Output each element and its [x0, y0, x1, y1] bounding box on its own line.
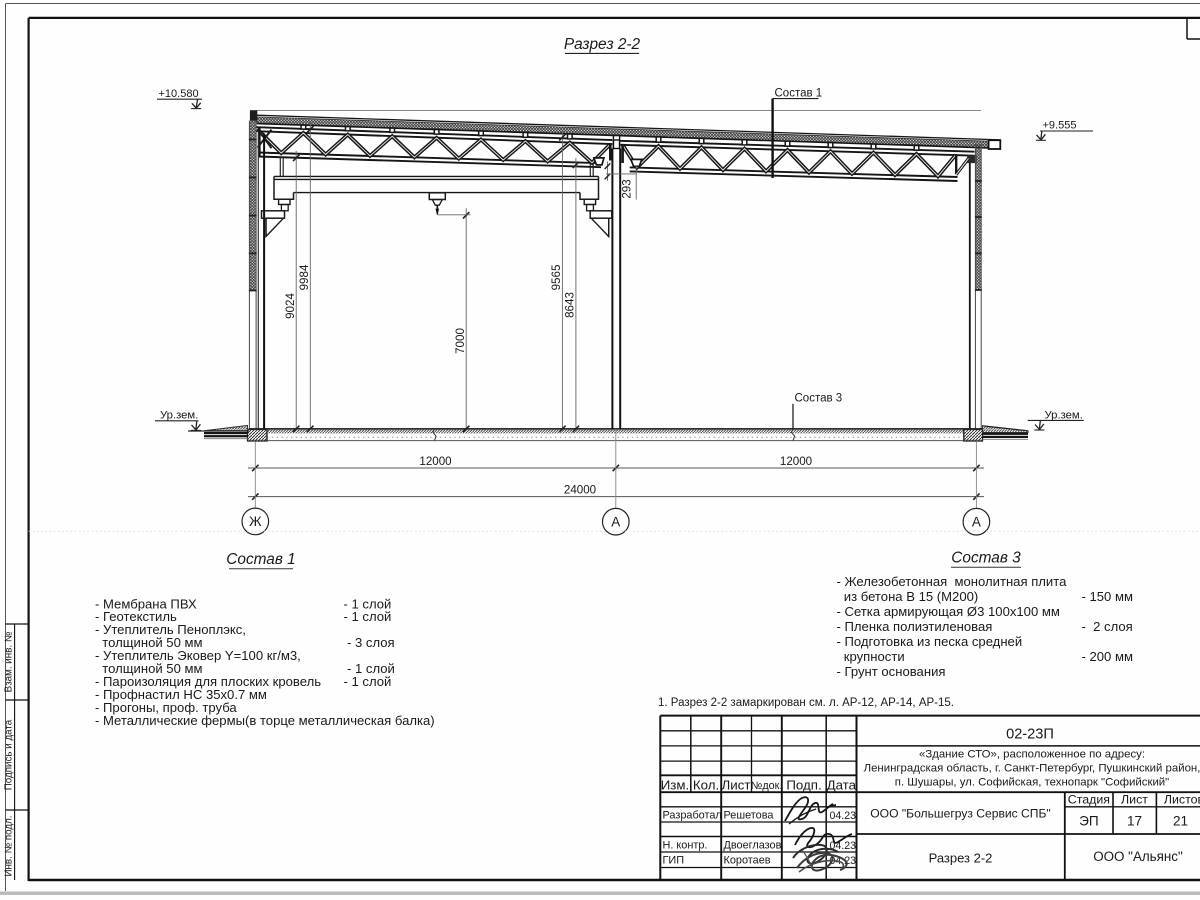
svg-text:- 2 слоя: - 2 слоя: [1082, 619, 1133, 634]
svg-text:9984: 9984: [298, 264, 311, 290]
svg-text:04.23: 04.23: [830, 810, 857, 822]
svg-text:А: А: [972, 515, 981, 530]
svg-text:17: 17: [1127, 814, 1142, 829]
svg-text:- Железобетонная монолитная п: - Железобетонная монолитная плита: [837, 574, 1068, 589]
svg-text:1. Разрез 2-2 замаркирован см.: 1. Разрез 2-2 замаркирован см. л. АР-12,…: [658, 697, 954, 709]
svg-text:Коротаев: Коротаев: [724, 854, 771, 866]
svg-text:Состав 1: Состав 1: [775, 88, 823, 100]
svg-text:24000: 24000: [564, 484, 596, 497]
svg-text:- 150 мм: - 150 мм: [1082, 589, 1134, 604]
svg-text:9565: 9565: [550, 265, 563, 291]
svg-text:+9.555: +9.555: [1043, 120, 1077, 132]
svg-text:- Металлические фермы(в торце: - Металлические фермы(в торце металличес…: [95, 713, 435, 728]
svg-text:Подпись и дата: Подпись и дата: [3, 719, 14, 790]
svg-text:Лист: Лист: [722, 777, 751, 792]
svg-text:Двоеглазов: Двоеглазов: [724, 839, 782, 851]
svg-text:Изм.: Изм.: [661, 777, 690, 792]
svg-text:Инв. № подл.: Инв. № подл.: [3, 815, 14, 876]
svg-text:- 3 слоя: - 3 слоя: [347, 635, 395, 650]
svg-text:Состав 1: Состав 1: [226, 551, 295, 568]
svg-text:- Грунт основания: - Грунт основания: [837, 664, 946, 679]
svg-text:Кол.: Кол.: [693, 777, 719, 792]
svg-text:Стадия: Стадия: [1068, 793, 1110, 807]
svg-text:Ж: Ж: [249, 514, 262, 529]
svg-text:21: 21: [1173, 814, 1188, 829]
svg-text:ООО "Альянс": ООО "Альянс": [1093, 849, 1183, 864]
svg-text:- 1 слой: - 1 слой: [344, 609, 392, 624]
svg-text:293: 293: [621, 179, 634, 198]
svg-text:Н. контр.: Н. контр.: [663, 839, 708, 851]
svg-text:ООО "Большегруз Сервис СПБ": ООО "Большегруз Сервис СПБ": [870, 807, 1050, 821]
svg-text:Ленинградская область, г. Санк: Ленинградская область, г. Санкт-Петербур…: [864, 763, 1200, 775]
svg-text:12000: 12000: [419, 455, 451, 468]
svg-text:Ур.зем.: Ур.зем.: [160, 410, 198, 422]
svg-text:12000: 12000: [780, 455, 812, 468]
svg-text:Ур.зем.: Ур.зем.: [1045, 409, 1083, 421]
svg-text:8643: 8643: [564, 292, 577, 318]
svg-text:Разрез 2-2: Разрез 2-2: [564, 36, 641, 53]
svg-text:- Сетка армирующая Ø3 100х100: - Сетка армирующая Ø3 100х100 мм: [837, 604, 1060, 619]
svg-text:Взам. инв. №: Взам. инв. №: [3, 632, 14, 693]
svg-text:Дата: Дата: [827, 777, 857, 792]
svg-text:02-23П: 02-23П: [1006, 726, 1054, 742]
svg-text:Лист: Лист: [1121, 793, 1148, 807]
svg-text:+10.580: +10.580: [159, 88, 199, 100]
svg-text:Разрез 2-2: Разрез 2-2: [929, 851, 993, 866]
svg-text:9024: 9024: [284, 293, 297, 319]
svg-text:Подп.: Подп.: [786, 777, 821, 792]
svg-text:п. Шушары, ул. Софийская, техн: п. Шушары, ул. Софийская, технопарк "Соф…: [895, 777, 1169, 789]
svg-text:«Здание СТО», расположенное по: «Здание СТО», расположенное по адресу:: [919, 749, 1145, 761]
svg-text:- Подготовка из песка средней: - Подготовка из песка средней: [837, 634, 1023, 649]
svg-text:Разработал: Разработал: [663, 809, 722, 821]
svg-text:Решетова: Решетова: [724, 809, 775, 821]
svg-text:Состав 3: Состав 3: [951, 550, 1021, 567]
svg-text:- 200 мм: - 200 мм: [1082, 649, 1134, 664]
svg-text:ЭП: ЭП: [1079, 814, 1099, 829]
svg-text:Состав 3: Состав 3: [795, 393, 843, 405]
svg-text:Листов: Листов: [1164, 793, 1200, 807]
svg-text:- Пленка полиэтиленовая: - Пленка полиэтиленовая: [837, 619, 993, 634]
svg-text:А: А: [611, 515, 620, 530]
svg-text:из бетона В 15 (М200): из бетона В 15 (М200): [837, 589, 979, 604]
svg-text:№док.: №док.: [751, 780, 783, 792]
svg-text:7000: 7000: [454, 328, 467, 354]
svg-text:- 1 слой: - 1 слой: [344, 674, 392, 689]
svg-text:крупности: крупности: [837, 649, 905, 664]
svg-text:ГИП: ГИП: [663, 854, 685, 866]
